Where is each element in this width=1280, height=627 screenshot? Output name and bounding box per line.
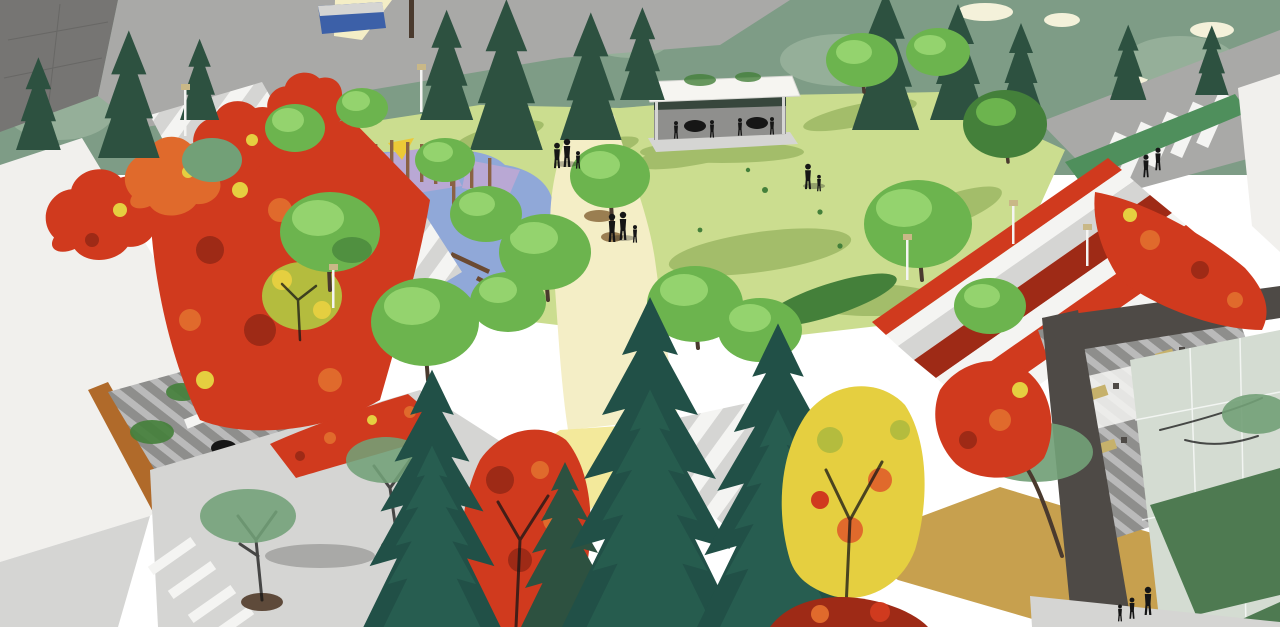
park-rendering: Aerial architectural rendering of a tria… <box>0 0 1280 627</box>
tree-canopy <box>182 138 242 182</box>
pavilion-post <box>655 100 658 140</box>
roof-overhanging-leaves <box>684 74 716 86</box>
tree-canopy <box>954 278 1026 334</box>
cafe-pavilion <box>640 72 804 163</box>
tree-canopy <box>415 138 475 182</box>
tree-canopy <box>470 272 546 332</box>
tree-canopy <box>265 104 325 152</box>
park-rendering-stage: Aerial architectural rendering of a tria… <box>0 0 1280 627</box>
roof-overhanging-leaves <box>735 72 761 82</box>
tree-shadow <box>265 544 375 568</box>
street-tree-trunk <box>409 0 414 38</box>
tree-canopy <box>906 28 970 76</box>
foreground-maple-right-edge <box>935 361 1051 478</box>
tree-canopy <box>336 88 388 128</box>
tree-canopy <box>450 186 522 242</box>
pavilion-post <box>782 96 785 134</box>
